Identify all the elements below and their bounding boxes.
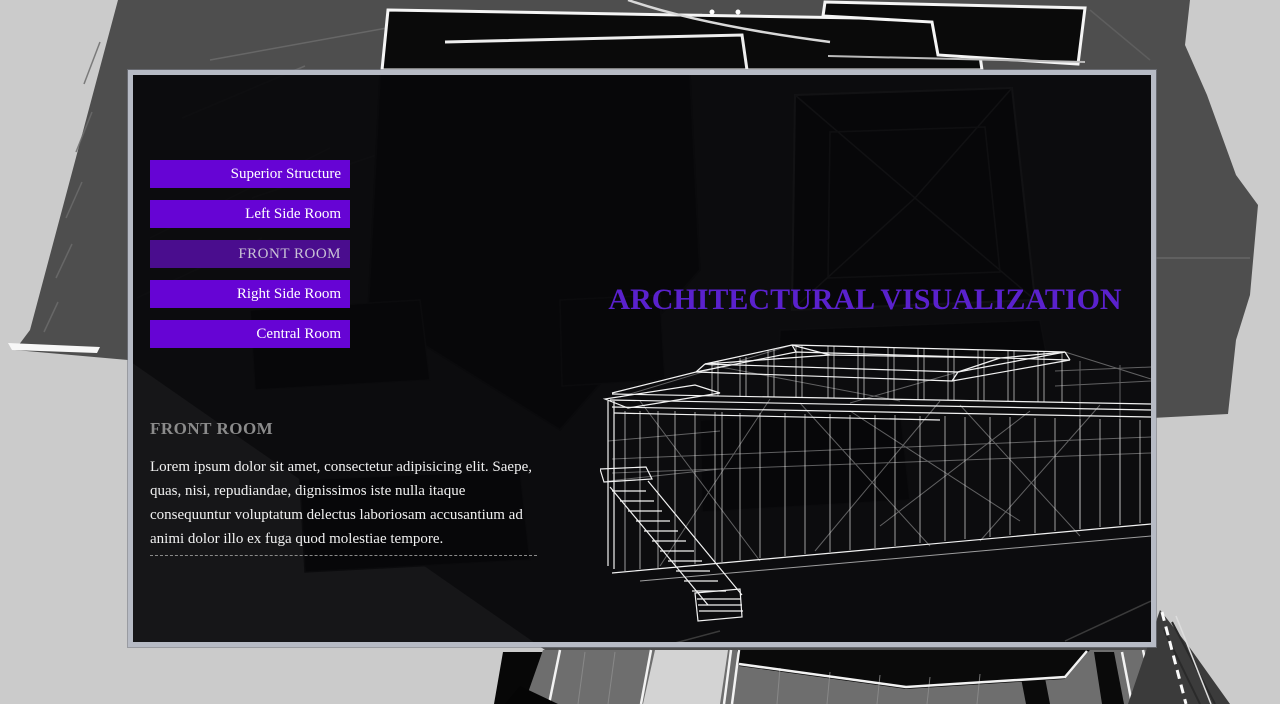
nav-button-front-room[interactable]: FRONT ROOM [150,240,350,268]
nav-button-central-room[interactable]: Central Room [150,320,350,348]
wireframe-house-model [600,341,1151,642]
page-title: ARCHITECTURAL VISUALIZATION [595,283,1135,317]
section-body-text: Lorem ipsum dolor sit amet, consectetur … [150,455,548,551]
nav-button-right-side-room[interactable]: Right Side Room [150,280,350,308]
overlay-panel: Superior Structure Left Side Room FRONT … [128,70,1156,647]
nav-button-left-side-room[interactable]: Left Side Room [150,200,350,228]
section-heading: FRONT ROOM [150,419,273,439]
nav-button-superior-structure[interactable]: Superior Structure [150,160,350,188]
room-nav: Superior Structure Left Side Room FRONT … [150,160,350,360]
separator [150,555,537,556]
app-window: { "overlay_title": { "text": "ARCHITECTU… [0,0,1280,704]
overlay-panel-content: Superior Structure Left Side Room FRONT … [133,75,1151,642]
